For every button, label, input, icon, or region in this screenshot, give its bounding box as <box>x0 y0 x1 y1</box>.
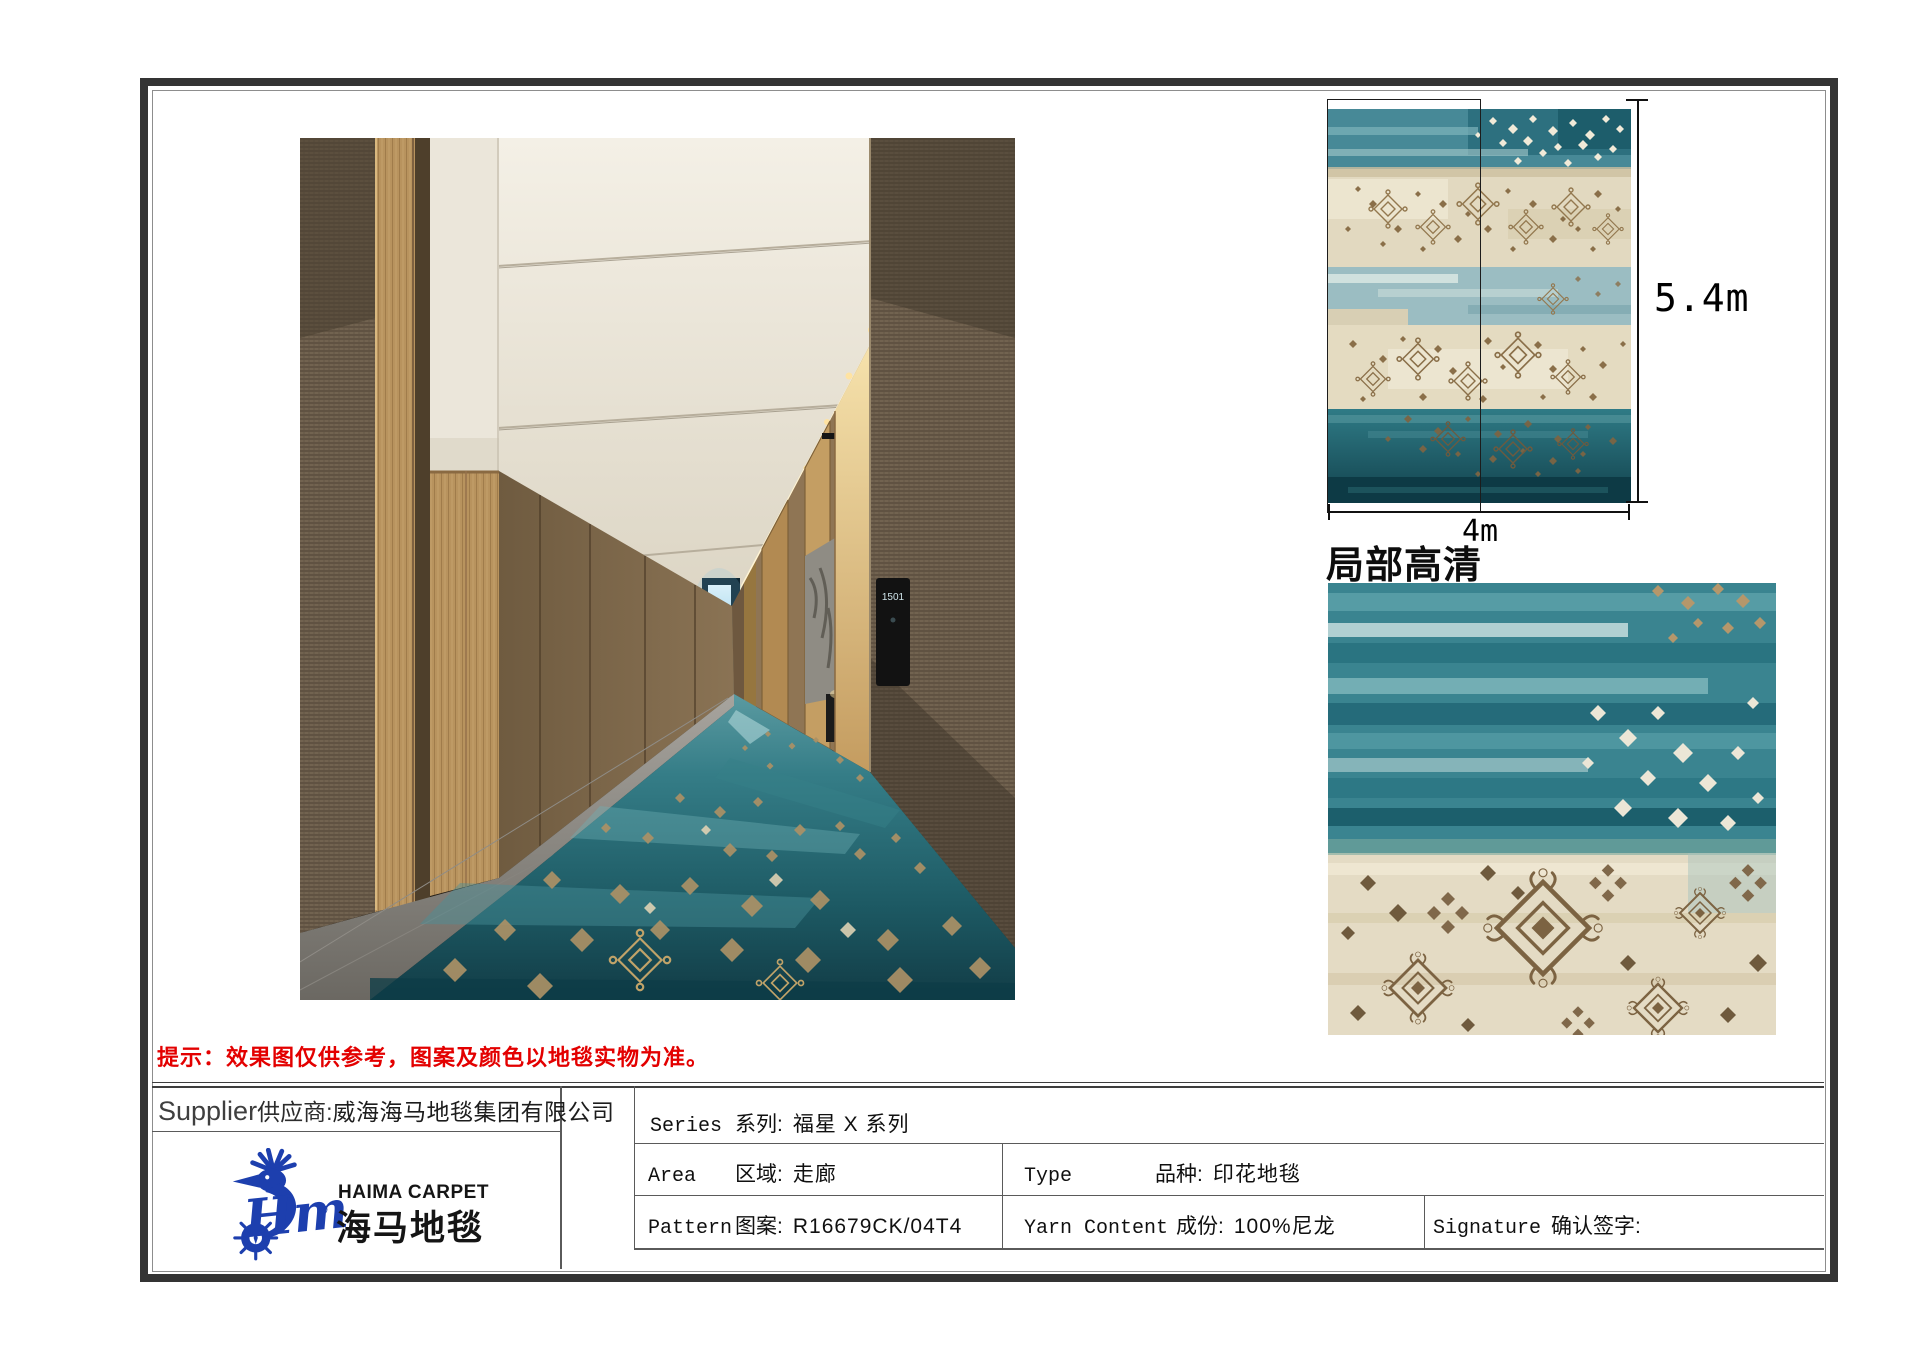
area-value: 走廊 <box>793 1158 837 1188</box>
spec-row-pattern: Pattern 图案: R16679CK/04T4 <box>648 1210 962 1240</box>
supplier-label-en: Supplier <box>158 1096 257 1126</box>
area-label-en: Area <box>648 1165 735 1188</box>
spec-row-signature: Signature 确认签字: <box>1433 1210 1651 1240</box>
signature-label-en: Signature <box>1433 1217 1551 1240</box>
table-line <box>634 1086 635 1248</box>
yarn-label-zh: 成份: <box>1176 1210 1224 1240</box>
pattern-label-zh: 图案: <box>735 1210 783 1240</box>
lit-door-jamb <box>835 345 870 772</box>
supplier-label-zh: 供应商: <box>257 1099 332 1125</box>
table-line <box>634 1248 1824 1250</box>
supplier-row: Supplier供应商:威海海马地毯集团有限公司 <box>158 1094 614 1128</box>
type-value: 印花地毯 <box>1213 1158 1301 1188</box>
series-label-en: Series <box>650 1115 735 1138</box>
table-line <box>1424 1195 1425 1248</box>
table-line <box>634 1143 1824 1144</box>
white-wall-panel <box>430 138 499 471</box>
type-label-en: Type <box>1024 1165 1155 1188</box>
dimension-tick <box>1328 504 1330 520</box>
corridor-rendering-image: 1501 <box>300 138 1015 1000</box>
pattern-label-en: Pattern <box>648 1217 735 1240</box>
spec-row-yarn: Yarn Content 成份: 100%尼龙 <box>1024 1210 1336 1240</box>
left-wardrobe <box>430 471 499 896</box>
spec-row-type: Type 品种: 印花地毯 <box>1024 1158 1301 1188</box>
signature-label-zh: 确认签字: <box>1551 1210 1641 1240</box>
dimension-tick <box>1628 504 1630 520</box>
table-line <box>152 1086 1824 1088</box>
logo-script-text: Hm <box>241 1179 351 1251</box>
height-dimension-line <box>1637 100 1639 503</box>
area-label-zh: 区域: <box>735 1158 783 1188</box>
width-dimension-line <box>1328 511 1630 513</box>
spec-sheet: 1501 <box>0 0 1920 1357</box>
table-line <box>634 1195 1824 1196</box>
pattern-value: R16679CK/04T4 <box>793 1215 962 1239</box>
supplier-company: 威海海马地毯集团有限公司 <box>332 1099 614 1125</box>
registered-mark-icon: ® <box>318 1202 328 1217</box>
spec-row-area: Area 区域: 走廊 <box>648 1158 837 1188</box>
spec-row-series: Series 系列: 福星 X 系列 <box>650 1108 910 1138</box>
height-dimension-label: 5.4m <box>1654 276 1750 320</box>
table-line <box>152 1131 560 1132</box>
dimension-tick <box>1626 501 1648 503</box>
table-line <box>1002 1143 1003 1248</box>
series-label-zh: 系列: <box>735 1108 783 1138</box>
type-label-zh: 品种: <box>1155 1158 1203 1188</box>
series-value: 福星 X 系列 <box>793 1108 910 1138</box>
repeat-unit-outline <box>1327 99 1481 513</box>
yarn-label-en: Yarn Content <box>1024 1217 1168 1240</box>
yarn-value: 100%尼龙 <box>1234 1210 1336 1240</box>
carpet-detail-image <box>1328 583 1776 1035</box>
door-number-label: 1501 <box>882 592 905 603</box>
table-line <box>152 1082 1824 1083</box>
door-access-panel: 1501 <box>876 578 910 686</box>
logo-name-zh: 海马地毯 <box>336 1200 484 1251</box>
disclaimer-note: 提示：效果图仅供参考，图案及颜色以地毯实物为准。 <box>157 1040 709 1072</box>
dimension-tick <box>1626 99 1648 101</box>
detail-section-title: 局部高清 <box>1326 534 1482 589</box>
